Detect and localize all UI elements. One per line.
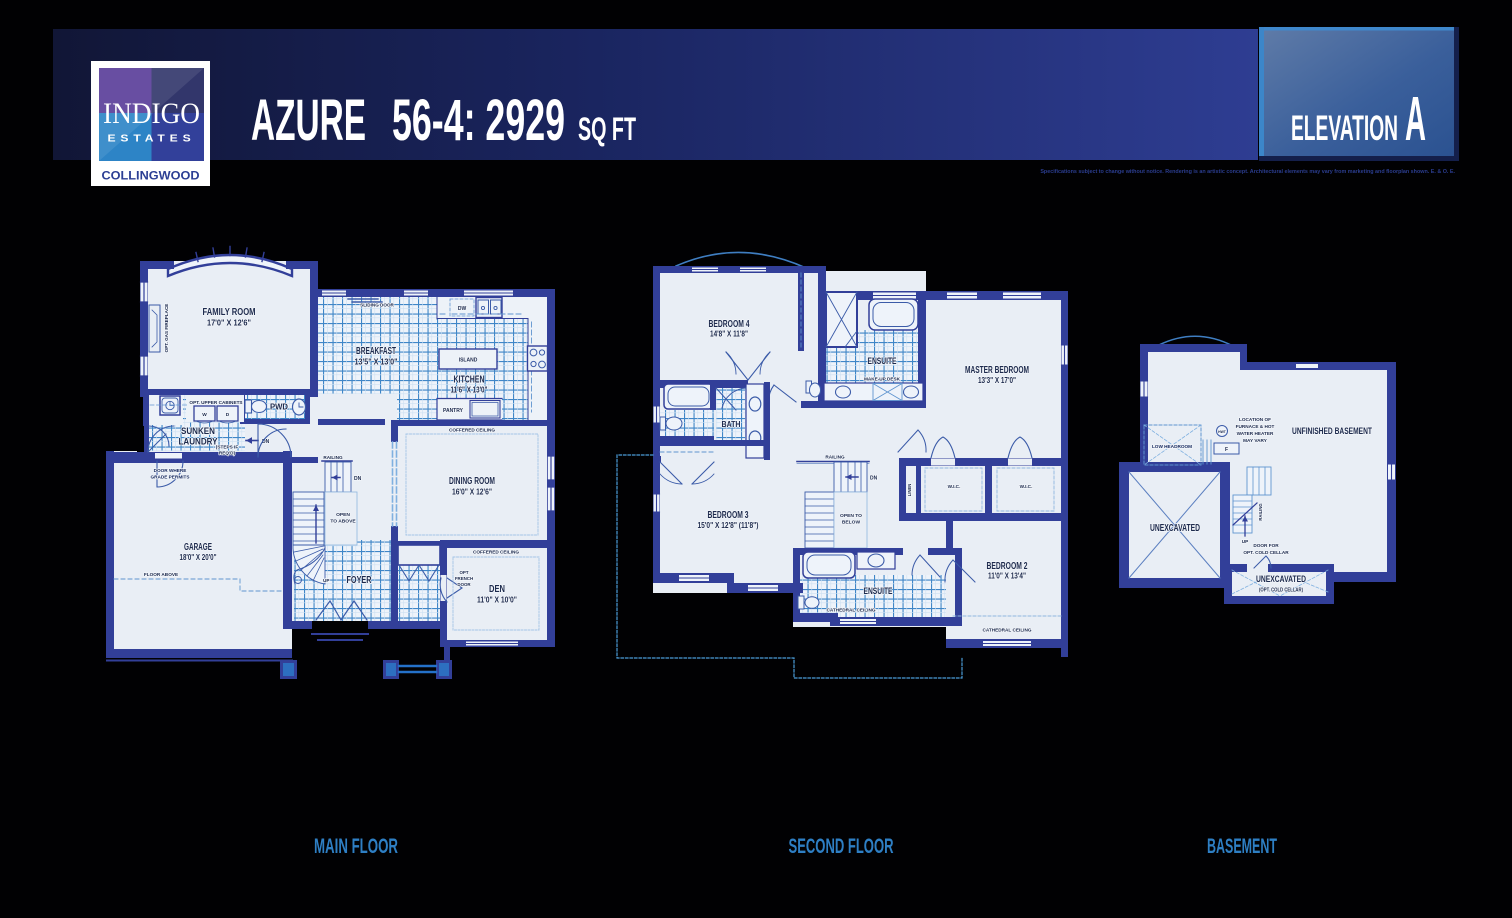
svg-text:KITCHEN: KITCHEN: [454, 375, 485, 386]
svg-text:COFFERED CEILING: COFFERED CEILING: [449, 428, 495, 433]
svg-text:16'0" X 12'6": 16'0" X 12'6": [452, 488, 492, 497]
svg-text:TO ABOVE: TO ABOVE: [330, 519, 356, 525]
svg-text:ENSUITE: ENSUITE: [864, 585, 893, 596]
svg-text:DEN: DEN: [489, 583, 505, 595]
svg-text:17'0" X 12'6": 17'0" X 12'6": [207, 319, 251, 328]
svg-text:ELEVATION: ELEVATION: [1291, 109, 1398, 148]
svg-text:FURNACE & HOT: FURNACE & HOT: [1236, 424, 1275, 429]
svg-text:13'5" X 13'0": 13'5" X 13'0": [355, 358, 398, 367]
svg-text:CATHEDRAL CEILING: CATHEDRAL CEILING: [826, 608, 875, 613]
svg-text:BATH: BATH: [722, 419, 741, 429]
svg-text:LOW HEADROOM: LOW HEADROOM: [1152, 444, 1192, 449]
svg-text:ESTATES: ESTATES: [108, 134, 196, 145]
svg-text:HWT: HWT: [1218, 430, 1227, 434]
svg-text:RAILING: RAILING: [323, 455, 343, 460]
svg-text:(STEPS IF: (STEPS IF: [216, 445, 239, 450]
svg-text:OPT. COLD CELLAR: OPT. COLD CELLAR: [1243, 550, 1289, 555]
svg-text:DN: DN: [354, 476, 362, 482]
svg-text:MASTER BEDROOM: MASTER BEDROOM: [965, 365, 1029, 376]
svg-text:DN: DN: [870, 476, 878, 482]
svg-text:BEDROOM 4: BEDROOM 4: [709, 319, 750, 330]
svg-text:W.I.C.: W.I.C.: [948, 484, 961, 489]
svg-text:RAILING: RAILING: [825, 455, 845, 460]
svg-text:BEDROOM 2: BEDROOM 2: [987, 561, 1028, 572]
svg-text:LOCATION OF: LOCATION OF: [1239, 417, 1271, 422]
svg-text:14'8" X 11'8": 14'8" X 11'8": [710, 330, 748, 339]
svg-text:SUNKEN: SUNKEN: [181, 426, 215, 436]
svg-text:INDIGO: INDIGO: [103, 97, 200, 130]
svg-text:F: F: [1225, 447, 1228, 453]
svg-text:DOOR FOR: DOOR FOR: [1253, 543, 1279, 548]
svg-text:REQ'D): REQ'D): [219, 451, 236, 456]
svg-text:COLLINGWOOD: COLLINGWOOD: [102, 169, 200, 183]
svg-text:UP: UP: [323, 578, 330, 583]
svg-text:11'0" X 13'4": 11'0" X 13'4": [988, 572, 1026, 581]
svg-text:BASEMENT: BASEMENT: [1207, 835, 1277, 858]
svg-text:PANTRY: PANTRY: [443, 408, 464, 414]
svg-text:SECOND FLOOR: SECOND FLOOR: [789, 835, 894, 858]
svg-text:MAKE-UP DESK: MAKE-UP DESK: [864, 377, 901, 382]
svg-text:A: A: [1405, 85, 1426, 154]
svg-text:FOYER: FOYER: [347, 575, 373, 586]
svg-text:15'0" X 12'8" (11'8"): 15'0" X 12'8" (11'8"): [698, 521, 759, 530]
svg-text:OPEN TO: OPEN TO: [840, 513, 862, 519]
svg-text:RAILING: RAILING: [1258, 503, 1263, 520]
svg-text:DOOR: DOOR: [457, 582, 471, 587]
svg-text:LINEN: LINEN: [907, 484, 912, 497]
svg-text:UNEXCAVATED: UNEXCAVATED: [1256, 573, 1306, 584]
svg-text:Specifications subject to chan: Specifications subject to change without…: [1040, 169, 1455, 175]
svg-text:FLOOR ABOVE: FLOOR ABOVE: [144, 572, 178, 577]
svg-text:DW: DW: [458, 306, 467, 312]
svg-text:13'3" X 17'0": 13'3" X 17'0": [978, 376, 1016, 385]
svg-text:BEDROOM 3: BEDROOM 3: [708, 510, 749, 521]
svg-text:UP: UP: [1242, 539, 1249, 544]
svg-text:W.I.C.: W.I.C.: [1020, 484, 1033, 489]
svg-text:LAUNDRY: LAUNDRY: [179, 437, 218, 447]
svg-text:BREAKFAST: BREAKFAST: [356, 346, 396, 357]
svg-text:D: D: [226, 412, 230, 418]
svg-text:SQ FT: SQ FT: [578, 111, 636, 147]
svg-text:(OPT. COLD CELLAR): (OPT. COLD CELLAR): [1259, 588, 1303, 594]
svg-text:11'6" X 13'0": 11'6" X 13'0": [451, 386, 488, 395]
svg-text:FAMILY ROOM: FAMILY ROOM: [203, 307, 256, 318]
svg-text:GARAGE: GARAGE: [184, 541, 212, 553]
svg-text:COFFERED CEILING: COFFERED CEILING: [473, 550, 519, 555]
svg-text:56-4: 2929: 56-4: 2929: [392, 88, 565, 153]
svg-text:AZURE: AZURE: [251, 88, 366, 153]
svg-text:WATER HEATER: WATER HEATER: [1237, 431, 1274, 436]
svg-text:FRENCH: FRENCH: [455, 576, 473, 581]
svg-text:CATHEDRAL CEILING: CATHEDRAL CEILING: [982, 628, 1031, 633]
svg-text:DINING ROOM: DINING ROOM: [449, 475, 495, 487]
svg-text:BELOW: BELOW: [842, 520, 861, 526]
svg-text:PWD: PWD: [270, 403, 288, 412]
svg-text:SLIDING DOOR: SLIDING DOOR: [360, 303, 394, 308]
svg-text:OPT: OPT: [459, 570, 468, 575]
svg-text:11'0" X 10'0": 11'0" X 10'0": [477, 596, 517, 605]
svg-text:DOOR WHERE: DOOR WHERE: [154, 468, 187, 473]
svg-text:UNFINISHED BASEMENT: UNFINISHED BASEMENT: [1292, 426, 1372, 437]
svg-text:OPEN: OPEN: [336, 512, 350, 518]
svg-text:UNEXCAVATED: UNEXCAVATED: [1150, 522, 1200, 534]
svg-text:GRADE PERMITS: GRADE PERMITS: [150, 475, 189, 480]
svg-text:W: W: [202, 412, 207, 418]
svg-text:MAY VARY: MAY VARY: [1243, 438, 1268, 443]
svg-text:ISLAND: ISLAND: [459, 358, 478, 364]
svg-text:MAIN FLOOR: MAIN FLOOR: [314, 835, 398, 858]
svg-text:ENSUITE: ENSUITE: [868, 355, 897, 366]
svg-text:OPT. UPPER CABINETS: OPT. UPPER CABINETS: [189, 400, 242, 405]
svg-text:OPT. GAS FIREPLACE: OPT. GAS FIREPLACE: [164, 304, 169, 353]
svg-text:18'0" X 20'0": 18'0" X 20'0": [180, 553, 217, 562]
